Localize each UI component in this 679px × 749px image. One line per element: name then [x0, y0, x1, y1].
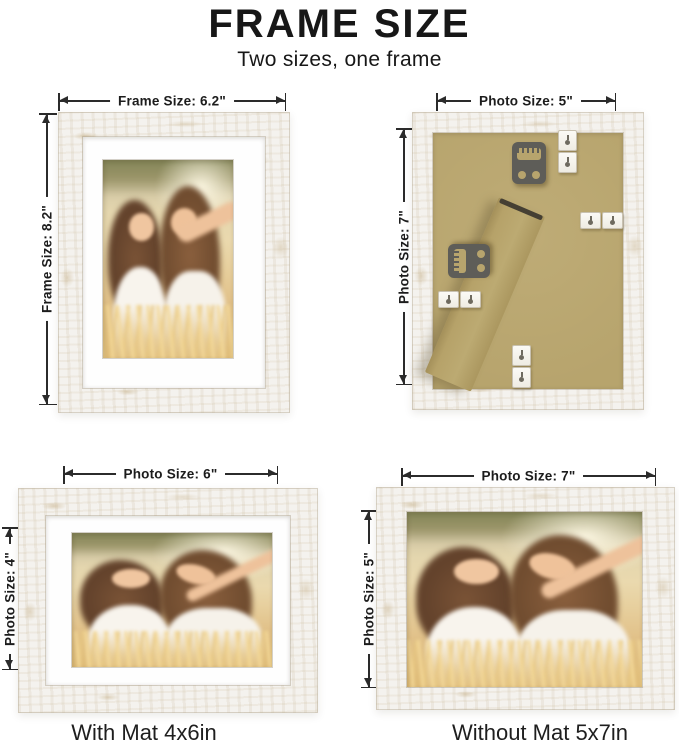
keyhole-hanger: [580, 212, 601, 229]
sun-glow: [152, 533, 272, 583]
keyhole-hanger: [558, 130, 577, 151]
girl-dress: [426, 607, 525, 688]
wheat-foreground: [72, 631, 272, 667]
girl-dress: [113, 267, 168, 358]
dimension-photo-height-mat: Photo Size: 4": [0, 527, 20, 670]
mother-face: [527, 549, 579, 584]
mother-dress: [166, 608, 262, 667]
caption-without-mat: Without Mat 5x7in: [452, 720, 628, 746]
girl-face: [454, 559, 499, 584]
dimension-photo-width-nomat: Photo Size: 7": [401, 466, 656, 486]
photo-scene: [72, 533, 272, 667]
mother-arm: [539, 533, 642, 601]
girl-hair: [416, 547, 515, 652]
frame-without-mat: [376, 487, 675, 710]
extension-tick: [615, 93, 617, 111]
frame-size-infographic: FRAME SIZE Two sizes, one frame Frame Si…: [0, 0, 679, 749]
dimension-label: Photo Size: 6": [116, 467, 226, 482]
keyhole-hanger: [558, 152, 577, 173]
keyhole-hanger: [512, 345, 531, 366]
arrow-left-icon: [65, 469, 73, 477]
girl-dress: [88, 605, 172, 667]
dimension-frame-width: Frame Size: 6.2": [58, 91, 286, 111]
arrow-left-icon: [438, 96, 446, 104]
dimension-label: Photo Size: 5": [471, 94, 581, 109]
arrow-left-icon: [60, 96, 68, 104]
photo-scene: [407, 512, 642, 687]
page-title: FRAME SIZE: [0, 1, 679, 47]
arrow-right-icon: [646, 471, 654, 479]
wheat-foreground: [407, 640, 642, 687]
framed-photo-with-mat: [72, 533, 272, 667]
extension-tick: [39, 404, 57, 406]
arrow-up-icon: [42, 115, 50, 123]
sawtooth-hanger: [448, 244, 490, 278]
dimension-label: Photo Size: 7": [474, 469, 584, 484]
extension-tick: [655, 468, 657, 486]
mother-arm: [185, 547, 272, 603]
arrow-left-icon: [403, 471, 411, 479]
sun-glow: [155, 160, 233, 233]
dimension-label: Photo Size: 7": [397, 202, 412, 312]
mother-face: [174, 561, 217, 589]
keyhole-hanger: [602, 212, 623, 229]
arrow-up-icon: [364, 512, 372, 520]
keyhole-hanger: [460, 291, 481, 308]
dimension-label: Photo Size: 5": [362, 544, 377, 654]
page-subtitle: Two sizes, one frame: [0, 47, 679, 73]
dimension-label: Frame Size: 8.2": [40, 197, 55, 321]
arrow-right-icon: [268, 469, 276, 477]
sun-glow: [501, 512, 642, 577]
dimension-photo-height-back: Photo Size: 7": [394, 128, 414, 385]
arrow-down-icon: [364, 678, 372, 686]
girl-face: [112, 569, 150, 588]
hills-backdrop: [103, 160, 233, 196]
mother-hair: [510, 535, 618, 658]
arrow-down-icon: [42, 395, 50, 403]
framed-photo-without-mat: [407, 512, 642, 687]
mother-dress: [517, 610, 630, 687]
arrow-right-icon: [606, 96, 614, 104]
frame-front-portrait: [58, 112, 290, 413]
arrow-down-icon: [399, 375, 407, 383]
arrow-up-icon: [5, 529, 13, 537]
arrow-down-icon: [5, 660, 13, 668]
header: FRAME SIZE Two sizes, one frame: [0, 0, 679, 73]
framed-photo-portrait: [103, 160, 233, 358]
keyhole-hanger: [512, 367, 531, 388]
wheat-foreground: [103, 305, 233, 358]
girl-hair: [108, 200, 163, 319]
girl-face: [129, 213, 154, 241]
frame-back-view: [412, 112, 644, 410]
arrow-right-icon: [276, 96, 284, 104]
mother-hair: [160, 550, 252, 644]
extension-tick: [277, 466, 279, 484]
dimension-label: Frame Size: 6.2": [110, 94, 234, 109]
extension-tick: [285, 93, 287, 111]
hills-backdrop: [72, 533, 272, 557]
arrow-up-icon: [399, 130, 407, 138]
dimension-photo-width-back: Photo Size: 5": [436, 91, 616, 111]
photo-scene: [103, 160, 233, 358]
sawtooth-hanger: [512, 142, 546, 184]
mother-dress: [164, 271, 226, 358]
dimension-frame-height: Frame Size: 8.2": [37, 113, 57, 405]
girl-hair: [80, 560, 164, 640]
dimension-label: Photo Size: 4": [3, 544, 18, 654]
dimension-photo-width-mat: Photo Size: 6": [63, 464, 278, 484]
caption-with-mat: With Mat 4x6in: [71, 720, 217, 746]
mother-face: [168, 205, 200, 238]
frame-with-mat: [18, 488, 318, 713]
mother-arm: [174, 200, 233, 246]
mother-hair: [160, 186, 220, 325]
hills-backdrop: [407, 512, 642, 544]
keyhole-hanger: [438, 291, 459, 308]
